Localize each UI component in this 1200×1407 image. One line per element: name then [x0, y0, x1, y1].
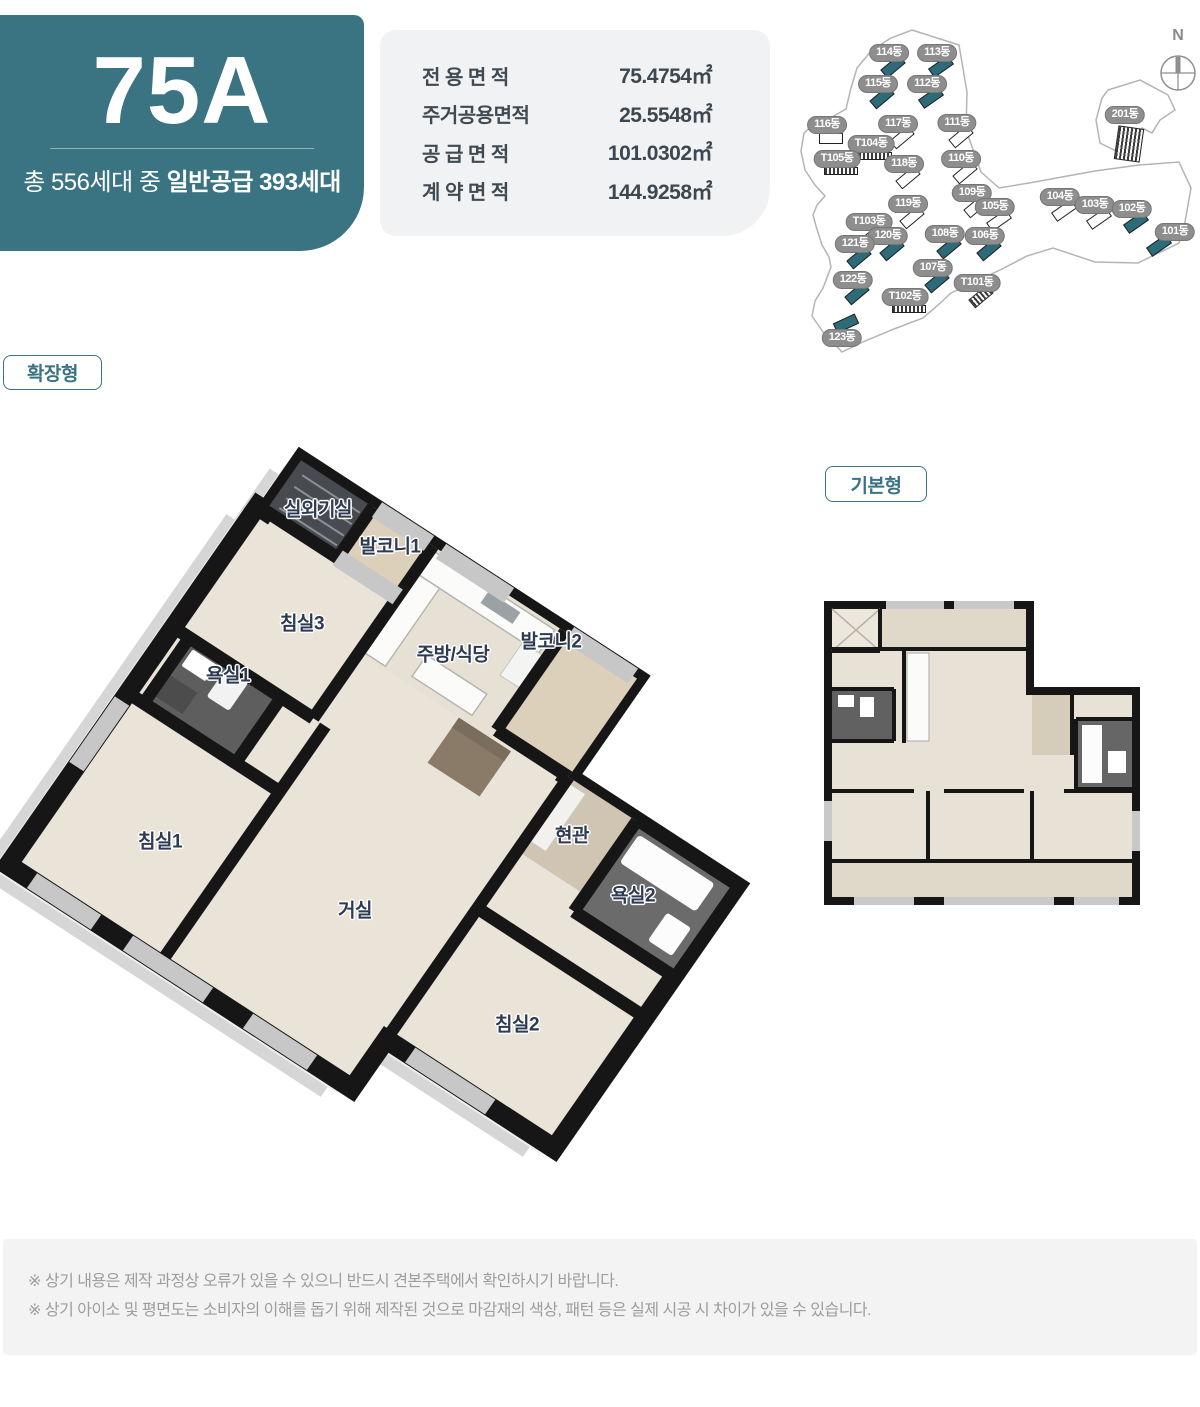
unit-subtitle: 총 556세대 중 일반공급 393세대	[23, 162, 341, 197]
building-pill: 113동	[917, 44, 957, 62]
spec-row: 공 급 면 적 101.0302㎡	[422, 137, 712, 167]
spec-label: 계 약 면 적	[422, 176, 571, 205]
building-pill: 201동	[1105, 106, 1145, 124]
building-pill: 105동	[975, 198, 1015, 216]
building-pill: 117동	[878, 115, 918, 133]
footnote-panel: ※ 상기 내용은 제작 과정상 오류가 있을 수 있으니 반드시 견본주택에서 …	[3, 1239, 1197, 1355]
building-pill: 119동	[888, 195, 928, 213]
divider	[50, 148, 314, 149]
tab-expanded-type[interactable]: 확장형	[3, 355, 102, 390]
tab-basic-type[interactable]: 기본형	[825, 466, 927, 502]
building-pill: 110동	[941, 150, 981, 168]
building-pill: 116동	[807, 116, 847, 134]
building-icon	[1114, 125, 1144, 162]
building-pill: 111동	[937, 114, 976, 132]
building-pill: 123동	[822, 329, 862, 347]
spec-value: 101.0302㎡	[591, 137, 712, 167]
building-pill: T102동	[882, 288, 929, 306]
unit-code: 75A	[92, 41, 271, 142]
spec-value: 75.4754㎡	[591, 60, 712, 90]
spec-row: 전 용 면 적 75.4754㎡	[422, 60, 712, 90]
spec-value: 144.9258㎡	[591, 176, 712, 206]
compass-north-label: N	[1172, 27, 1184, 45]
building-pill: 102동	[1112, 200, 1152, 218]
building-pill: 118동	[884, 155, 924, 173]
iso-floorplan	[0, 430, 760, 1200]
building-icon	[824, 167, 858, 175]
building-pill: 103동	[1075, 196, 1115, 214]
site-map: N 114동113동115동112동116동117동111동T104동T105동…	[795, 15, 1200, 360]
building-pill: 112동	[907, 75, 947, 93]
building-pill: 115동	[858, 75, 898, 93]
building-pill: 101동	[1155, 223, 1195, 241]
building-pill: T105동	[814, 150, 861, 168]
flyer-page: 75A 총 556세대 중 일반공급 393세대 전 용 면 적 75.4754…	[0, 0, 1200, 1407]
spec-label: 공 급 면 적	[422, 138, 571, 167]
compass-icon	[1161, 56, 1195, 90]
unit-subtitle-prefix: 총 556세대 중	[23, 169, 166, 196]
building-pill: 106동	[965, 227, 1005, 245]
spec-row: 계 약 면 적 144.9258㎡	[422, 176, 712, 206]
unit-subtitle-strong: 일반공급 393세대	[167, 169, 341, 196]
spec-row: 주거공용면적 25.5548㎡	[422, 99, 712, 129]
building-pill: 107동	[913, 259, 953, 277]
building-pill: T101동	[954, 274, 1001, 292]
building-icon	[819, 133, 843, 144]
basic-floorplan	[824, 601, 1140, 906]
spec-label: 주거공용면적	[422, 99, 571, 128]
building-pill: 108동	[925, 225, 965, 243]
building-pill: 114동	[869, 44, 909, 62]
spec-label: 전 용 면 적	[422, 61, 571, 90]
footnote-line: ※ 상기 내용은 제작 과정상 오류가 있을 수 있으니 반드시 견본주택에서 …	[28, 1271, 1177, 1293]
building-pill: 122동	[833, 271, 873, 289]
building-icon	[892, 305, 926, 313]
building-pill: 121동	[835, 235, 875, 253]
spec-value: 25.5548㎡	[591, 99, 712, 129]
unit-code-panel: 75A 총 556세대 중 일반공급 393세대	[0, 15, 364, 251]
site-map-outline	[795, 15, 1200, 360]
area-spec-panel: 전 용 면 적 75.4754㎡ 주거공용면적 25.5548㎡ 공 급 면 적…	[380, 30, 770, 236]
footnote-line: ※ 상기 아이소 및 평면도는 소비자의 이해를 돕기 위해 제작된 것으로 마…	[28, 1300, 1177, 1322]
